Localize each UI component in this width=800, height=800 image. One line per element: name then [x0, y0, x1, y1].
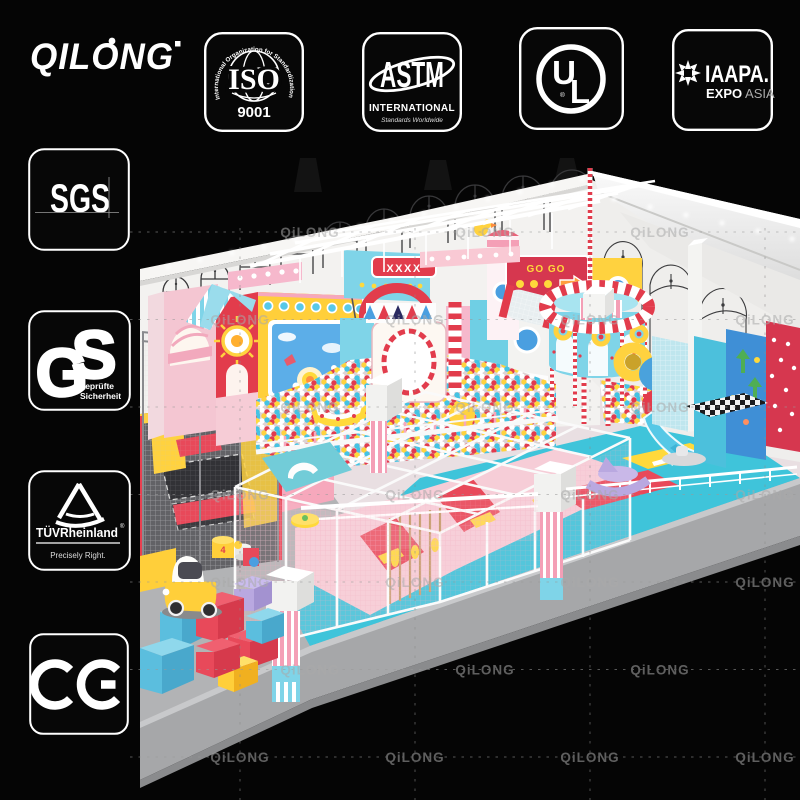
svg-text:INTERNATIONAL: INTERNATIONAL	[369, 103, 455, 114]
svg-text:ASTM: ASTM	[380, 54, 444, 95]
svg-text:TÜVRheinland: TÜVRheinland	[36, 525, 118, 540]
svg-text:QiLONG: QiLONG	[630, 225, 689, 240]
svg-text:ISO: ISO	[228, 63, 280, 96]
svg-text:QiLONG: QiLONG	[280, 225, 339, 240]
svg-text:IAAPA.: IAAPA.	[705, 61, 769, 88]
svg-text:QiLONG: QiLONG	[210, 575, 269, 590]
svg-text:®: ®	[120, 523, 125, 530]
svg-text:GO GO: GO GO	[527, 264, 566, 275]
svg-text:9001: 9001	[237, 104, 270, 121]
svg-text:®: ®	[560, 91, 565, 99]
svg-text:Standards Worldwide: Standards Worldwide	[381, 117, 443, 124]
svg-text:QiLONG: QiLONG	[280, 663, 339, 678]
svg-text:QiLONG: QiLONG	[455, 400, 514, 415]
svg-text:QiLONG: QiLONG	[280, 400, 339, 415]
svg-text:QiLONG: QiLONG	[385, 575, 444, 590]
svg-text:QiLONG: QiLONG	[630, 663, 689, 678]
svg-text:QiLONG: QiLONG	[630, 400, 689, 415]
svg-text:QILONG: QILONG	[30, 36, 174, 77]
svg-text:QiLONG: QiLONG	[455, 663, 514, 678]
svg-text:SGS: SGS	[50, 177, 110, 221]
svg-text:Sicherheit: Sicherheit	[80, 391, 121, 401]
svg-text:XXXX: XXXX	[386, 263, 421, 275]
svg-text:EXPO ASIA: EXPO ASIA	[706, 86, 775, 101]
svg-text:L: L	[570, 73, 590, 110]
svg-text:geprüfte: geprüfte	[80, 381, 114, 391]
svg-text:QiLONG: QiLONG	[560, 575, 619, 590]
svg-text:Precisely Right.: Precisely Right.	[50, 551, 106, 560]
svg-text:4: 4	[220, 545, 225, 555]
svg-text:QiLONG: QiLONG	[735, 575, 794, 590]
svg-text:QiLONG: QiLONG	[455, 225, 514, 240]
